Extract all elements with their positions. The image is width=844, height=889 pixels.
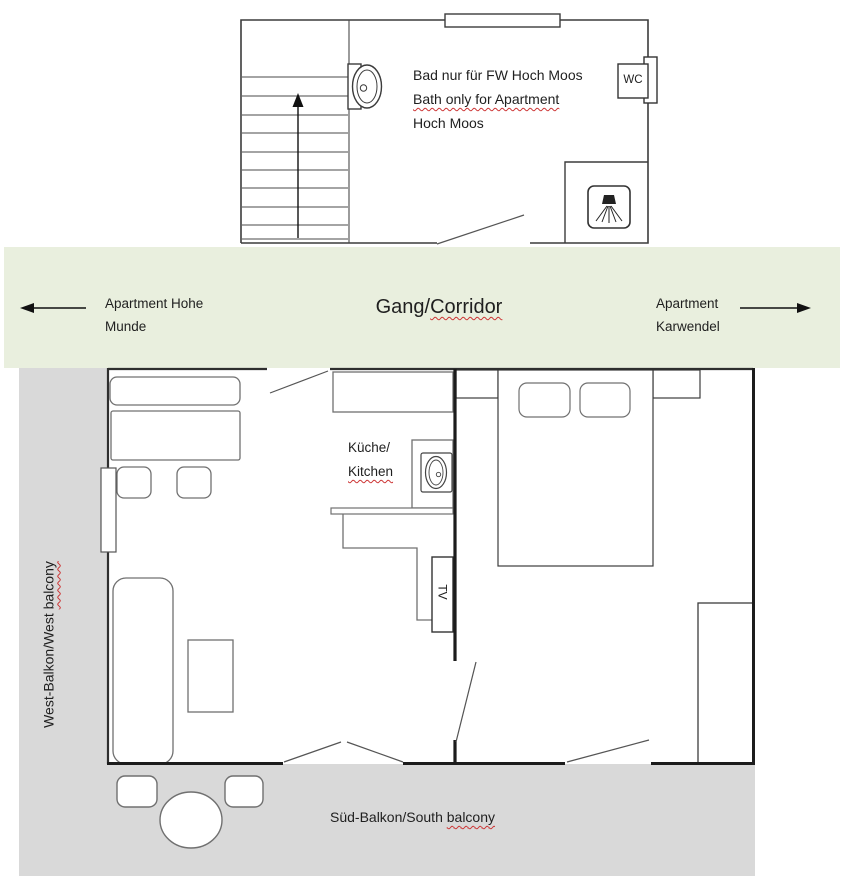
balcony-table — [160, 792, 222, 848]
west-balcony-label: West-Balkon/West balcony — [38, 545, 61, 745]
floor-plan: Bad nur für FW Hoch Moos Bath only for A… — [0, 0, 844, 889]
balcony-chair-left — [117, 776, 157, 807]
south-door-left-leaf — [284, 742, 341, 762]
bathroom-note-line2: Bath only for Apartment — [413, 87, 583, 111]
living-room-entry-door — [270, 371, 328, 393]
kitchen-bar — [331, 508, 453, 514]
shower-icon — [588, 186, 630, 228]
kitchen-l-counter — [343, 514, 432, 620]
pillow-right — [580, 383, 630, 417]
corridor-arrow-right-icon — [740, 303, 811, 313]
pillow-left — [519, 383, 570, 417]
sofa — [113, 578, 173, 764]
staircase — [242, 20, 349, 243]
bathroom-note-line3: Hoch Moos — [413, 111, 583, 135]
stool-right — [177, 467, 211, 498]
south-balcony-label: Süd-Balkon/South balcony — [330, 806, 495, 829]
bathroom-note: Bad nur für FW Hoch Moos Bath only for A… — [413, 63, 583, 135]
bathroom-window — [445, 14, 560, 27]
bedroom-door — [456, 662, 476, 742]
south-door-right-leaf — [347, 742, 403, 762]
kitchen-counter-top — [333, 372, 453, 412]
stool-left — [117, 467, 151, 498]
coffee-table — [188, 640, 233, 712]
balcony-chair-right — [225, 776, 263, 807]
wc-label: WC — [619, 73, 647, 87]
nightstand-left — [456, 370, 498, 398]
double-bed — [498, 370, 653, 566]
wardrobe — [698, 603, 753, 763]
kitchen-sink-icon — [421, 453, 452, 492]
tv-label: TV — [436, 577, 450, 608]
sofa-bed-top — [110, 377, 240, 460]
apartment-hohe-munde-label: Apartment Hohe Munde — [105, 292, 203, 338]
bedroom-balcony-door — [567, 740, 649, 762]
corridor-arrow-left-icon — [20, 303, 86, 313]
kitchen-label: Küche/ Kitchen — [348, 436, 393, 484]
apartment-karwendel-label: Apartment Karwendel — [656, 292, 720, 338]
bathroom-note-line1: Bad nur für FW Hoch Moos — [413, 63, 583, 87]
nightstand-right — [653, 370, 700, 398]
corridor-label: Gang/Corridor — [339, 294, 539, 320]
west-balcony-door — [101, 468, 116, 552]
bathroom-door — [437, 215, 524, 244]
sink-icon — [348, 64, 382, 109]
